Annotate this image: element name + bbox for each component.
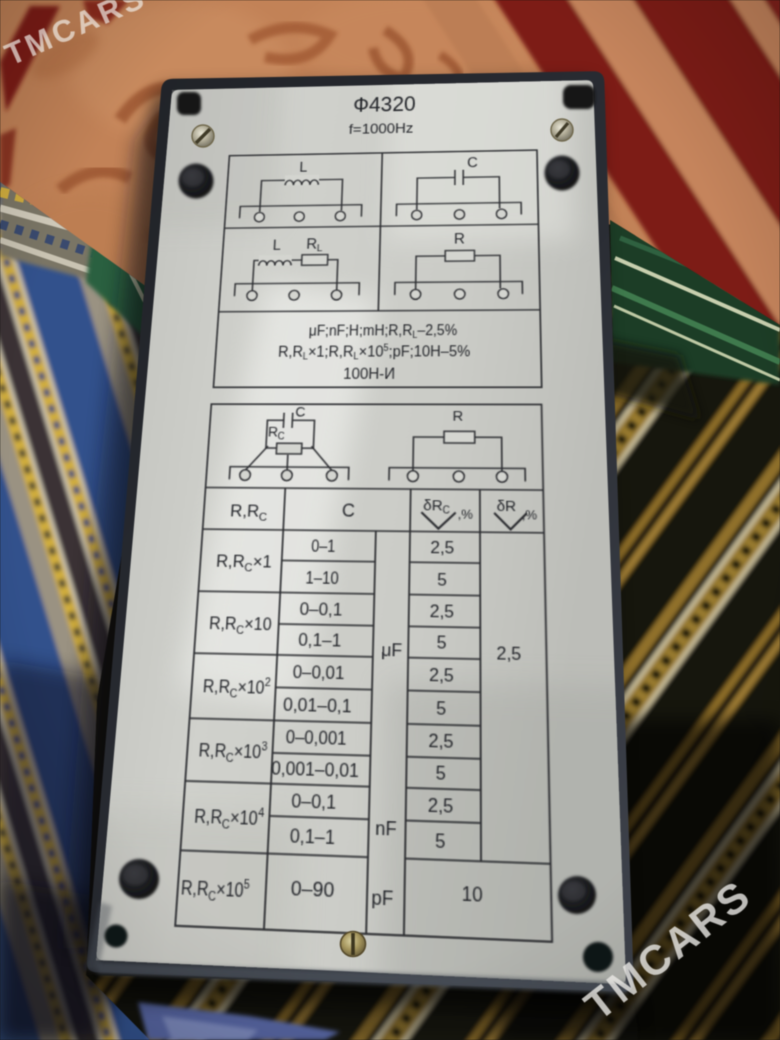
- svg-text:TMCARS: TMCARS: [0, 0, 151, 72]
